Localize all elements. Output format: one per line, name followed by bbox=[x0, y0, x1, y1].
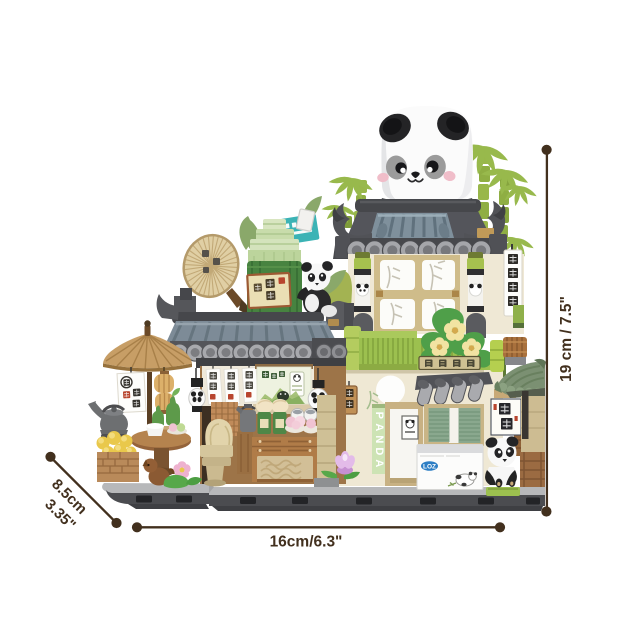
svg-text:D: D bbox=[373, 447, 385, 455]
svg-text:LOZ: LOZ bbox=[423, 464, 436, 471]
svg-text:19 cm / 7.5": 19 cm / 7.5" bbox=[558, 296, 575, 382]
svg-text:16cm/6.3": 16cm/6.3" bbox=[270, 534, 343, 551]
svg-text:A: A bbox=[373, 423, 385, 431]
svg-text:A: A bbox=[373, 459, 385, 467]
svg-text:N: N bbox=[373, 435, 385, 443]
svg-text:P: P bbox=[373, 412, 385, 419]
